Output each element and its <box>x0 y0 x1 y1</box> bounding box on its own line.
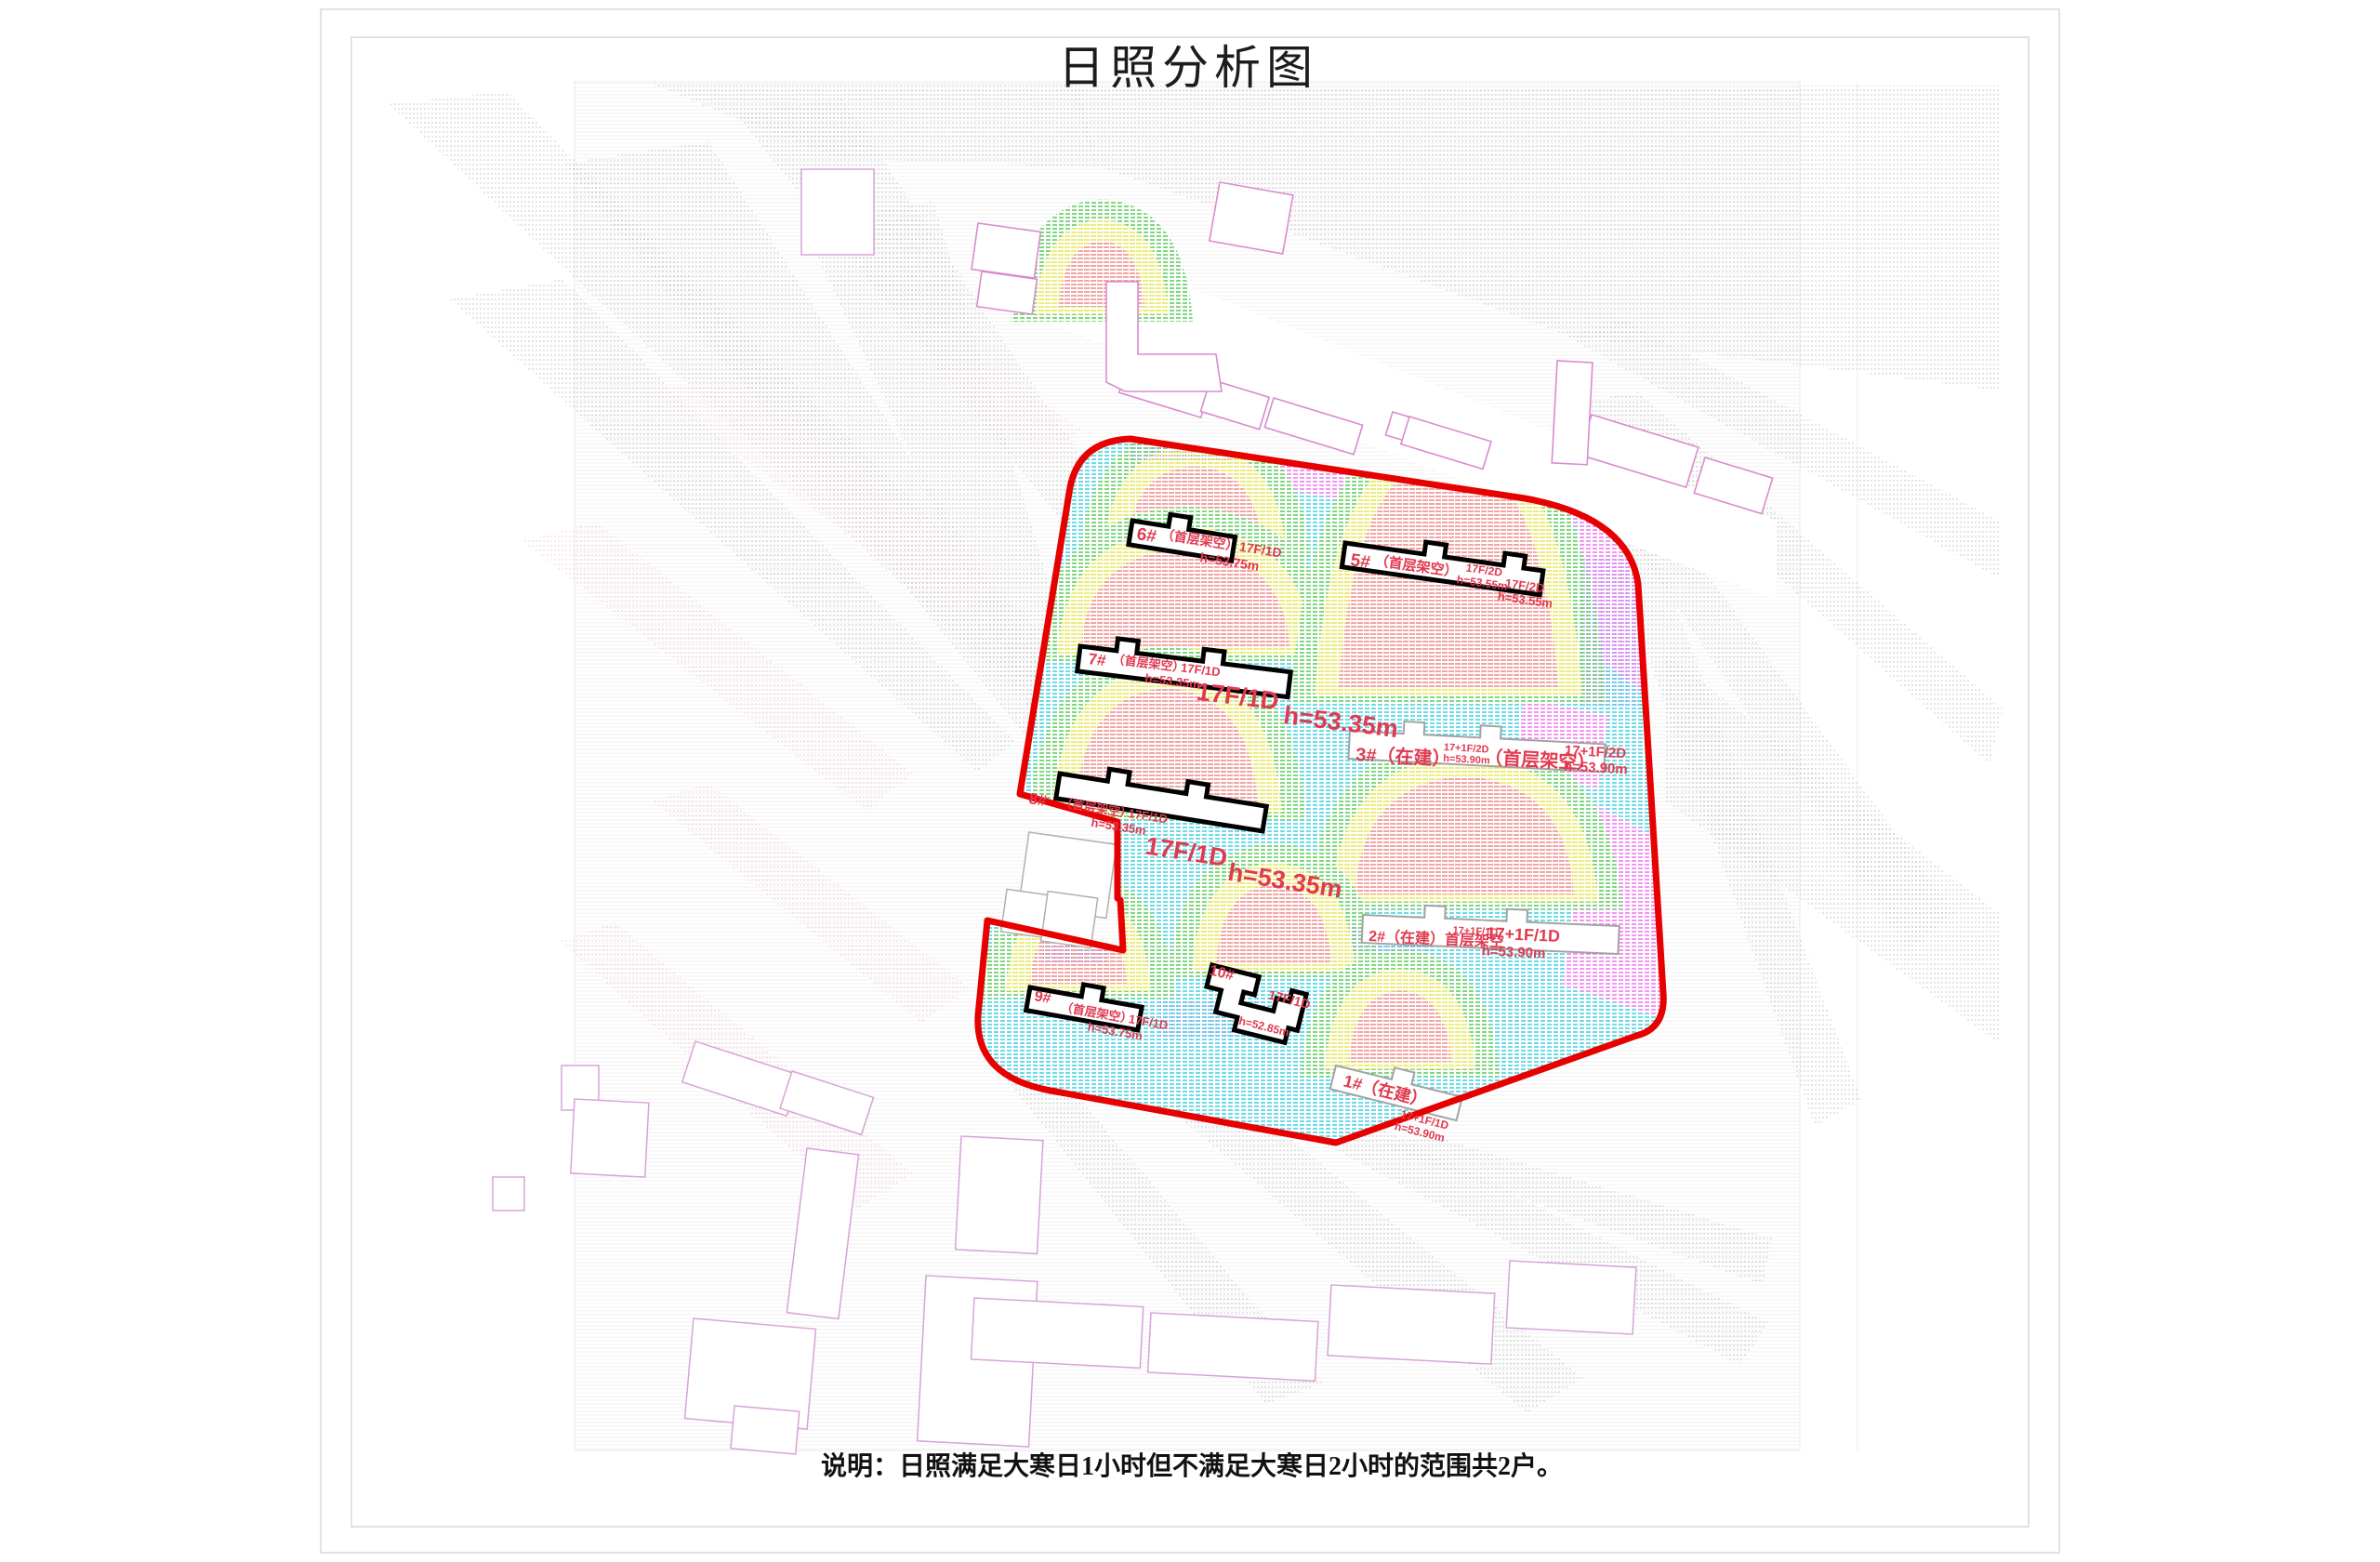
existing-building <box>972 223 1040 278</box>
existing-building <box>977 271 1038 314</box>
building-6-name: 6# <box>1135 524 1158 547</box>
existing-building <box>1328 1285 1495 1364</box>
existing-building <box>493 1177 524 1211</box>
existing-building <box>1148 1313 1318 1381</box>
existing-building <box>1506 1261 1636 1334</box>
drawing-sheet: 6# （首层架空） 17F/1D h=53.75m 5# （首层架空） 17F/… <box>0 0 2380 1562</box>
existing-building <box>1552 361 1593 465</box>
analysis-note: 说明：日照满足大寒日1小时但不满足大寒日2小时的范围共2户。 <box>821 1450 1563 1481</box>
page-title: 日照分析图 <box>1058 42 1318 94</box>
existing-building <box>731 1406 800 1454</box>
existing-building <box>972 1298 1144 1368</box>
existing-building <box>956 1136 1043 1253</box>
building-3-height: h=53.90m <box>1564 759 1629 778</box>
building-5-name: 5# <box>1349 550 1371 573</box>
sunshine-analysis-canvas: 6# （首层架空） 17F/1D h=53.75m 5# （首层架空） 17F/… <box>0 0 2380 1562</box>
existing-building <box>571 1099 649 1177</box>
building-7-name: 7# <box>1088 650 1108 669</box>
building-8-name: 8# <box>1027 789 1048 810</box>
building-2-spec: 17+1F/1D <box>1486 924 1560 946</box>
existing-building <box>1210 182 1293 254</box>
building-2-height: h=53.90m <box>1481 943 1545 961</box>
existing-building <box>801 169 874 255</box>
building-9-name: 9# <box>1033 988 1052 1007</box>
